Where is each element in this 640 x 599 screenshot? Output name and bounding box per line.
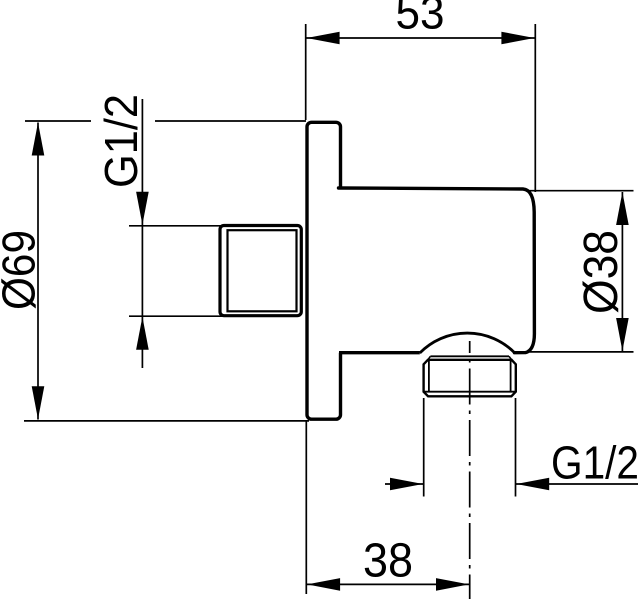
svg-text:G1/2: G1/2 <box>551 437 639 489</box>
svg-text:53: 53 <box>396 0 445 39</box>
svg-text:G1/2: G1/2 <box>95 94 147 188</box>
svg-text:Ø38: Ø38 <box>575 230 628 314</box>
svg-text:38: 38 <box>363 534 413 587</box>
svg-text:Ø69: Ø69 <box>0 230 45 310</box>
